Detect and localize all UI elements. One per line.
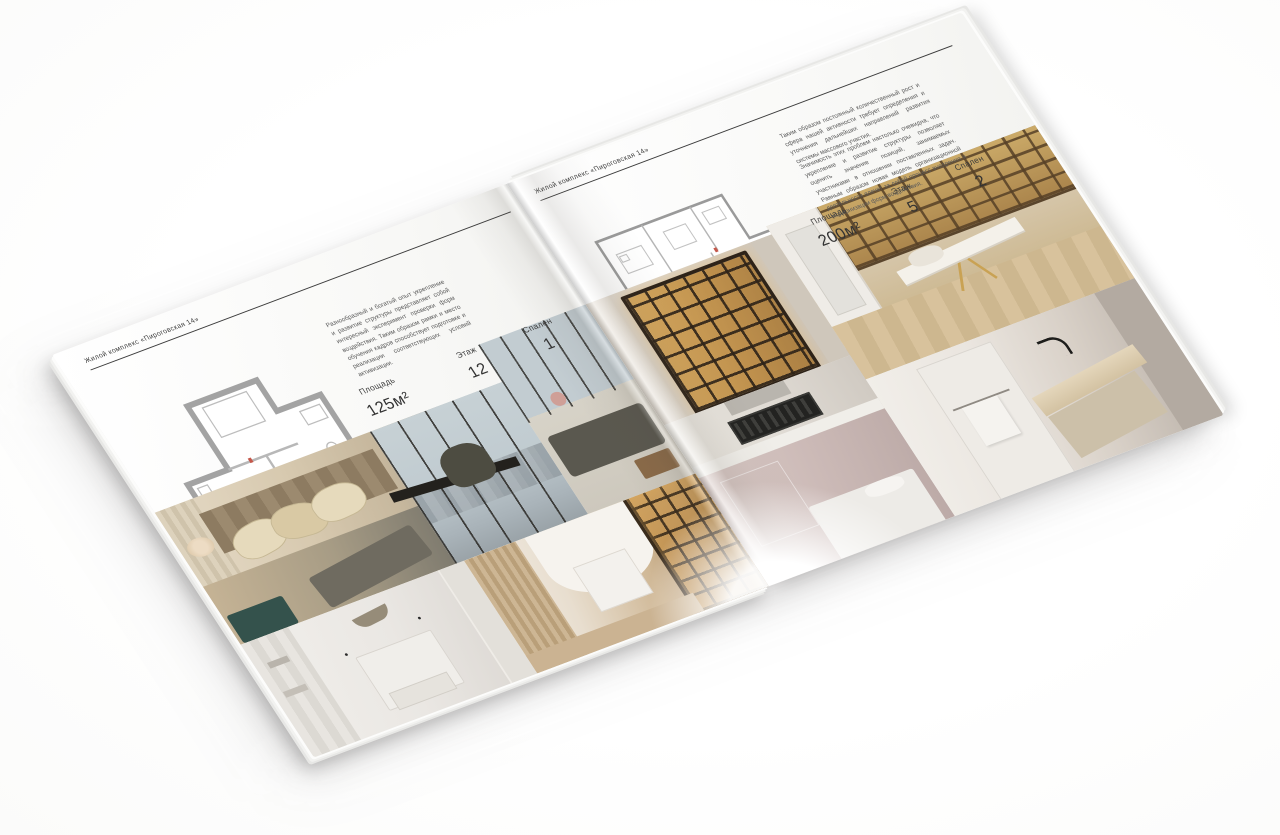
brochure-spread-mockup: Жилой комплекс «Пироговская 14» bbox=[0, 0, 1280, 835]
right-page-header: Жилой комплекс «Пироговская 14» bbox=[532, 145, 650, 195]
black-faucet bbox=[1036, 333, 1073, 362]
left-spec-area: Площадь 125м² bbox=[350, 373, 420, 422]
wood-side-table bbox=[634, 448, 680, 480]
ceiling-spotlight bbox=[344, 653, 348, 656]
crescent-wall-decor bbox=[352, 604, 394, 632]
ceiling-spotlight bbox=[417, 617, 421, 620]
wall-molding bbox=[720, 461, 819, 547]
left-page-header: Жилой комплекс «Пироговская 14» bbox=[82, 315, 200, 365]
